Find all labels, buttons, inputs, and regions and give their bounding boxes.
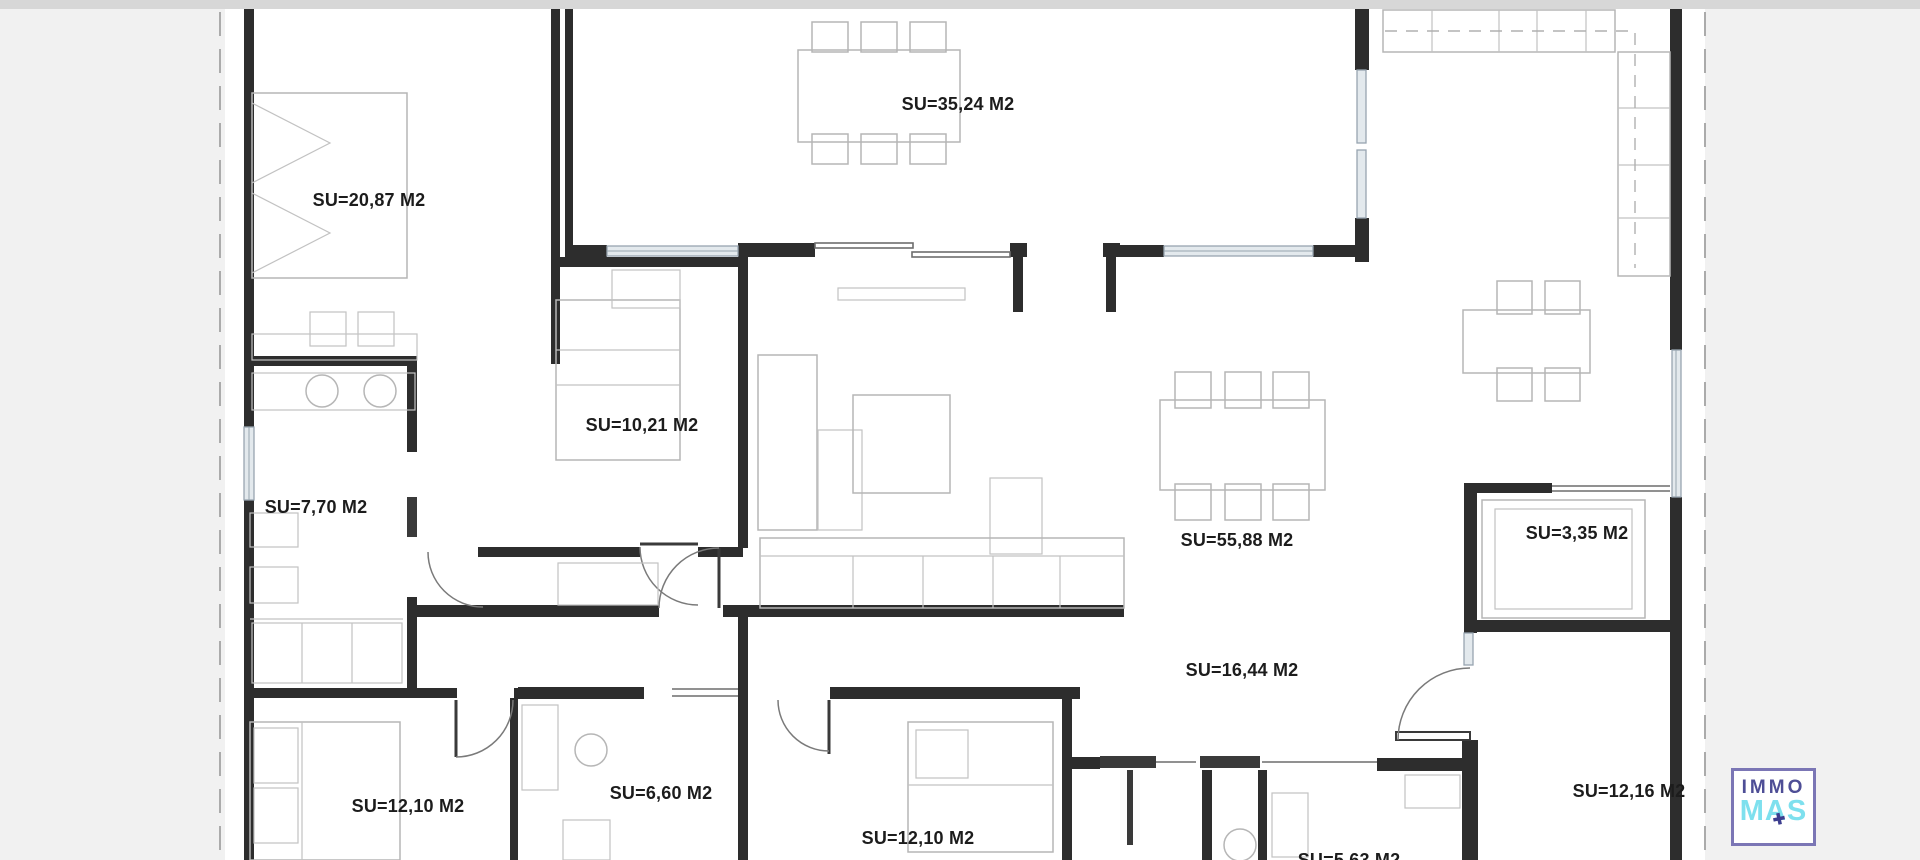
door-threshold	[1200, 756, 1260, 768]
room-label-room-bottom-right: SU=12,16 M2	[1573, 781, 1686, 801]
room-label-hallway: SU=16,44 M2	[1186, 660, 1299, 680]
entrance-door-leaf	[1396, 732, 1470, 740]
logo-text-mas: MAS ✚	[1734, 798, 1813, 824]
top-cutoff-strip	[0, 0, 1920, 9]
room-label-bedroom-mid-left: SU=10,21 M2	[586, 415, 699, 435]
room-label-bathroom-right: SU=3,35 M2	[1526, 523, 1629, 543]
logo-plus-icon: ✚	[1771, 811, 1787, 827]
laundry-door-leaf	[407, 497, 417, 537]
room-label-bedroom-top-left: SU=20,87 M2	[313, 190, 426, 210]
room-label-bedroom-bottom-middle: SU=12,10 M2	[862, 828, 975, 848]
room-label-laundry: SU=7,70 M2	[265, 497, 368, 517]
floor-plan-drawing: SU=20,87 M2 SU=35,24 M2 SU=10,21 M2 SU=7…	[0, 0, 1920, 860]
room-label-bedroom-bottom-left: SU=12,10 M2	[352, 796, 465, 816]
immomas-logo: IMMO MAS ✚	[1731, 768, 1816, 846]
wc-door-leaf	[1127, 770, 1133, 845]
door-threshold	[1100, 756, 1156, 768]
room-label-dining-room: SU=35,24 M2	[902, 94, 1015, 114]
room-label-wc-bottom: SU=5,63 M2	[1298, 850, 1401, 860]
room-label-living-room: SU=55,88 M2	[1181, 530, 1294, 550]
room-label-bathroom-left: SU=6,60 M2	[610, 783, 713, 803]
floor-plan-page: SU=20,87 M2 SU=35,24 M2 SU=10,21 M2 SU=7…	[0, 0, 1920, 860]
